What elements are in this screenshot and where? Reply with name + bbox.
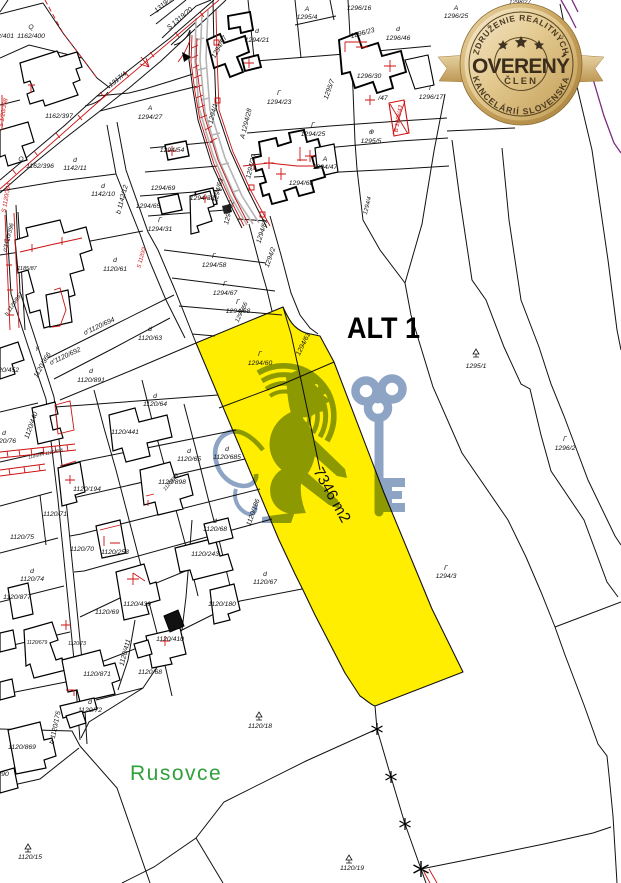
svg-text:1120/68: 1120/68 <box>203 526 227 533</box>
svg-text:1294/25: 1294/25 <box>301 131 326 138</box>
svg-text:1120/15: 1120/15 <box>18 854 42 861</box>
svg-text:1120/180: 1120/180 <box>208 601 236 608</box>
svg-text:1120/243: 1120/243 <box>191 551 219 558</box>
svg-text:1120/64: 1120/64 <box>143 401 167 408</box>
svg-text:/47: /47 <box>377 95 388 102</box>
svg-text:Q: Q <box>28 24 34 31</box>
svg-text:Rusovce: Rusovce <box>130 762 222 785</box>
svg-text:1120/75: 1120/75 <box>10 534 34 541</box>
svg-text:'62/401: '62/401 <box>0 33 14 40</box>
svg-text:1294/54: 1294/54 <box>160 147 185 154</box>
svg-text:1120/67: 1120/67 <box>253 579 277 586</box>
svg-text:d: d <box>88 699 92 706</box>
svg-text:⊕: ⊕ <box>368 129 374 136</box>
svg-text:d: d <box>101 183 105 190</box>
svg-text:1294/69: 1294/69 <box>151 185 176 192</box>
svg-text:1120/19: 1120/19 <box>340 865 364 872</box>
svg-text:1120/63: 1120/63 <box>138 335 162 342</box>
svg-text:1142/11: 1142/11 <box>63 165 87 172</box>
svg-text:1120/439: 1120/439 <box>123 601 151 608</box>
svg-text:d: d <box>2 430 6 437</box>
svg-text:1120/18: 1120/18 <box>248 723 272 730</box>
svg-text:1185/87: 1185/87 <box>17 266 37 272</box>
svg-text:1120/73: 1120/73 <box>68 641 86 647</box>
svg-text:1120/871: 1120/871 <box>83 671 111 678</box>
svg-text:1120/441: 1120/441 <box>111 429 139 436</box>
svg-text:1294/47: 1294/47 <box>313 164 338 171</box>
svg-text:d: d <box>187 448 191 455</box>
svg-text:d: d <box>148 326 152 333</box>
svg-text:1120/61: 1120/61 <box>103 266 127 273</box>
svg-text:1296/17: 1296/17 <box>419 94 444 101</box>
svg-text:1120/679: 1120/679 <box>27 640 48 646</box>
svg-text:Q: Q <box>18 156 24 163</box>
svg-text:1294/23: 1294/23 <box>267 99 292 106</box>
svg-text:1120/68: 1120/68 <box>138 669 162 676</box>
svg-text:1120/74: 1120/74 <box>20 576 44 583</box>
svg-text:d: d <box>396 26 400 33</box>
svg-text:1296/16: 1296/16 <box>347 5 372 12</box>
svg-text:ČLEN: ČLEN <box>504 75 538 87</box>
svg-text:1120/69: 1120/69 <box>95 609 119 616</box>
svg-text:OVERENÝ: OVERENÝ <box>472 54 570 78</box>
svg-text:d: d <box>225 446 229 453</box>
svg-text:1294/38: 1294/38 <box>190 195 215 202</box>
svg-text:1294/27: 1294/27 <box>138 114 163 121</box>
svg-text:1294/31: 1294/31 <box>148 226 173 233</box>
svg-text:d: d <box>263 571 267 578</box>
svg-text:1294/58: 1294/58 <box>202 262 227 269</box>
svg-text:/90: /90 <box>0 771 9 778</box>
svg-text:1295/5: 1295/5 <box>361 138 382 145</box>
svg-text:1295/4: 1295/4 <box>297 14 318 21</box>
svg-text:ALT 1: ALT 1 <box>347 312 420 345</box>
svg-text:d: d <box>153 393 157 400</box>
svg-text:1120/877: 1120/877 <box>3 594 31 601</box>
svg-text:1296/25: 1296/25 <box>444 13 469 20</box>
svg-text:1120/70: 1120/70 <box>70 546 94 553</box>
svg-text:d: d <box>73 157 77 164</box>
svg-text:1120/194: 1120/194 <box>73 486 101 493</box>
svg-text:A: A <box>322 156 328 163</box>
svg-text:1294/3: 1294/3 <box>436 573 457 580</box>
svg-text:1162/397: 1162/397 <box>45 113 73 120</box>
svg-text:1162/400: 1162/400 <box>17 33 45 40</box>
svg-text:'20/452: '20/452 <box>0 367 19 374</box>
svg-text:1120/891: 1120/891 <box>77 377 105 384</box>
svg-text:1162/396: 1162/396 <box>26 163 54 170</box>
svg-text:1294/68: 1294/68 <box>289 180 314 187</box>
svg-text:1296/46: 1296/46 <box>386 35 411 42</box>
svg-text:d: d <box>255 28 259 35</box>
svg-text:A: A <box>453 5 459 12</box>
svg-text:A: A <box>304 6 310 13</box>
svg-text:d: d <box>113 257 117 264</box>
svg-text:1120/65: 1120/65 <box>177 456 201 463</box>
svg-text:1296/2: 1296/2 <box>555 445 576 452</box>
svg-text:1120/410: 1120/410 <box>156 636 184 643</box>
svg-text:1120/869: 1120/869 <box>8 744 36 751</box>
svg-text:1120/72: 1120/72 <box>78 707 102 714</box>
svg-text:1120/71: 1120/71 <box>43 511 67 518</box>
svg-text:1142/10: 1142/10 <box>91 191 115 198</box>
svg-text:1120/76: 1120/76 <box>0 438 16 445</box>
svg-text:1294/21: 1294/21 <box>245 37 270 44</box>
svg-text:1294/67: 1294/67 <box>213 290 238 297</box>
svg-text:1296/30: 1296/30 <box>357 73 382 80</box>
svg-text:1120/253: 1120/253 <box>101 549 129 556</box>
svg-text:1294/65: 1294/65 <box>136 203 161 210</box>
svg-text:A: A <box>147 105 153 112</box>
svg-text:d: d <box>89 368 93 375</box>
svg-text:1295/1: 1295/1 <box>466 363 487 370</box>
svg-text:d: d <box>213 518 217 525</box>
svg-text:d: d <box>30 568 34 575</box>
